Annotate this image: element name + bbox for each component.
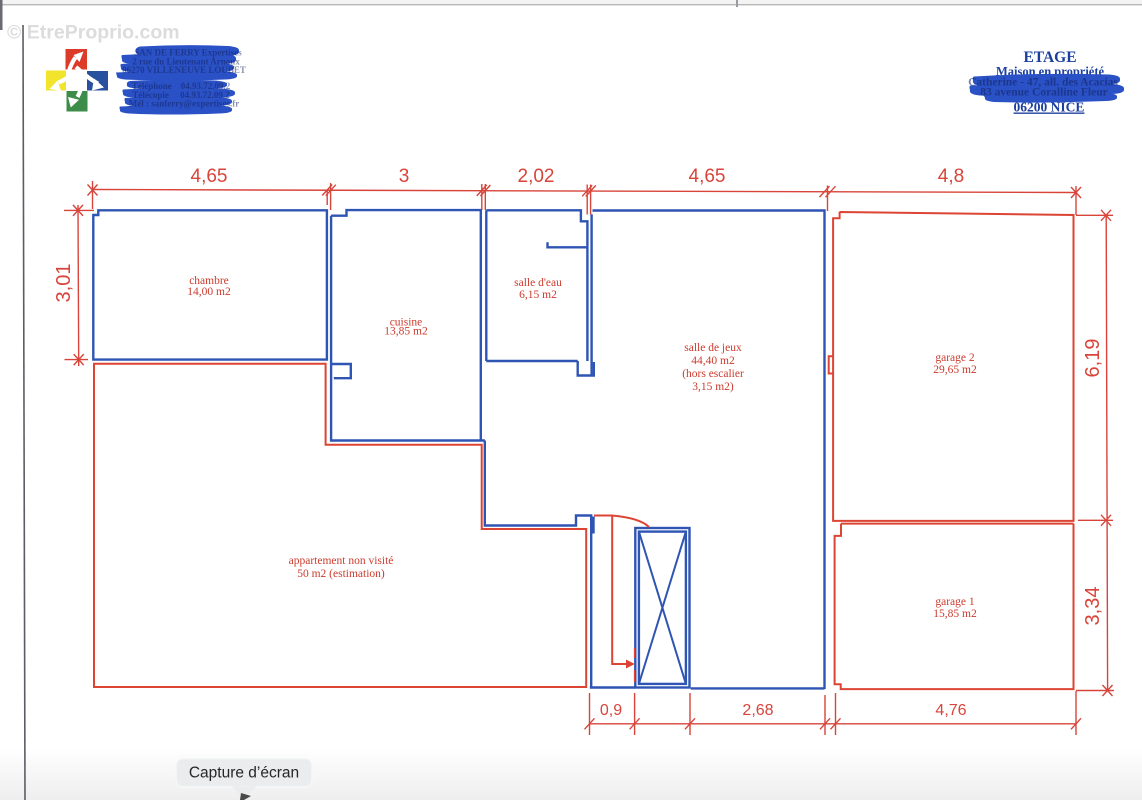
svg-text:2,02: 2,02 [518, 166, 555, 187]
svg-text:appartement non visité: appartement non visité [289, 555, 394, 567]
svg-text:06200 NICE: 06200 NICE [1014, 100, 1085, 115]
svg-text:50 m2 (estimation): 50 m2 (estimation) [297, 568, 385, 580]
svg-text:4,8: 4,8 [938, 166, 964, 187]
svg-text:garage 2: garage 2 [935, 352, 975, 364]
svg-text:3,34: 3,34 [1082, 587, 1104, 626]
svg-text:Mél : sanferry@expertises.fr: Mél : sanferry@expertises.fr [129, 99, 240, 109]
svg-text:15,85 m2: 15,85 m2 [933, 608, 977, 620]
svg-text:© EtreProprio.com: © EtreProprio.com [7, 22, 180, 44]
svg-text:4,65: 4,65 [689, 166, 726, 187]
svg-text:garage 1: garage 1 [935, 596, 975, 608]
svg-text:29,65 m2: 29,65 m2 [933, 364, 977, 376]
svg-text:4,76: 4,76 [935, 702, 966, 719]
svg-text:Capture d’écran: Capture d’écran [189, 765, 299, 782]
svg-text:0,9: 0,9 [600, 702, 622, 719]
svg-text:3,15 m2): 3,15 m2) [692, 381, 734, 393]
svg-text:06270 VILLENEUVE LOUBET: 06270 VILLENEUVE LOUBET [122, 65, 246, 75]
svg-text:salle de jeux: salle de jeux [684, 342, 742, 354]
svg-text:(hors escalier: (hors escalier [682, 368, 744, 380]
svg-text:13,85 m2: 13,85 m2 [384, 326, 428, 338]
svg-text:2,68: 2,68 [742, 702, 773, 719]
svg-text:14,00 m2: 14,00 m2 [187, 286, 231, 298]
svg-text:6,19: 6,19 [1082, 339, 1104, 378]
svg-text:4,65: 4,65 [191, 166, 228, 187]
svg-text:3,01: 3,01 [53, 264, 75, 303]
svg-text:3: 3 [399, 166, 410, 187]
svg-text:6,15 m2: 6,15 m2 [519, 289, 557, 301]
svg-text:44,40 m2: 44,40 m2 [691, 355, 735, 367]
svg-text:salle d'eau: salle d'eau [514, 277, 562, 289]
svg-text:83 avenue Coralline Fleur: 83 avenue Coralline Fleur [980, 87, 1107, 99]
svg-text:ETAGE: ETAGE [1023, 49, 1076, 66]
